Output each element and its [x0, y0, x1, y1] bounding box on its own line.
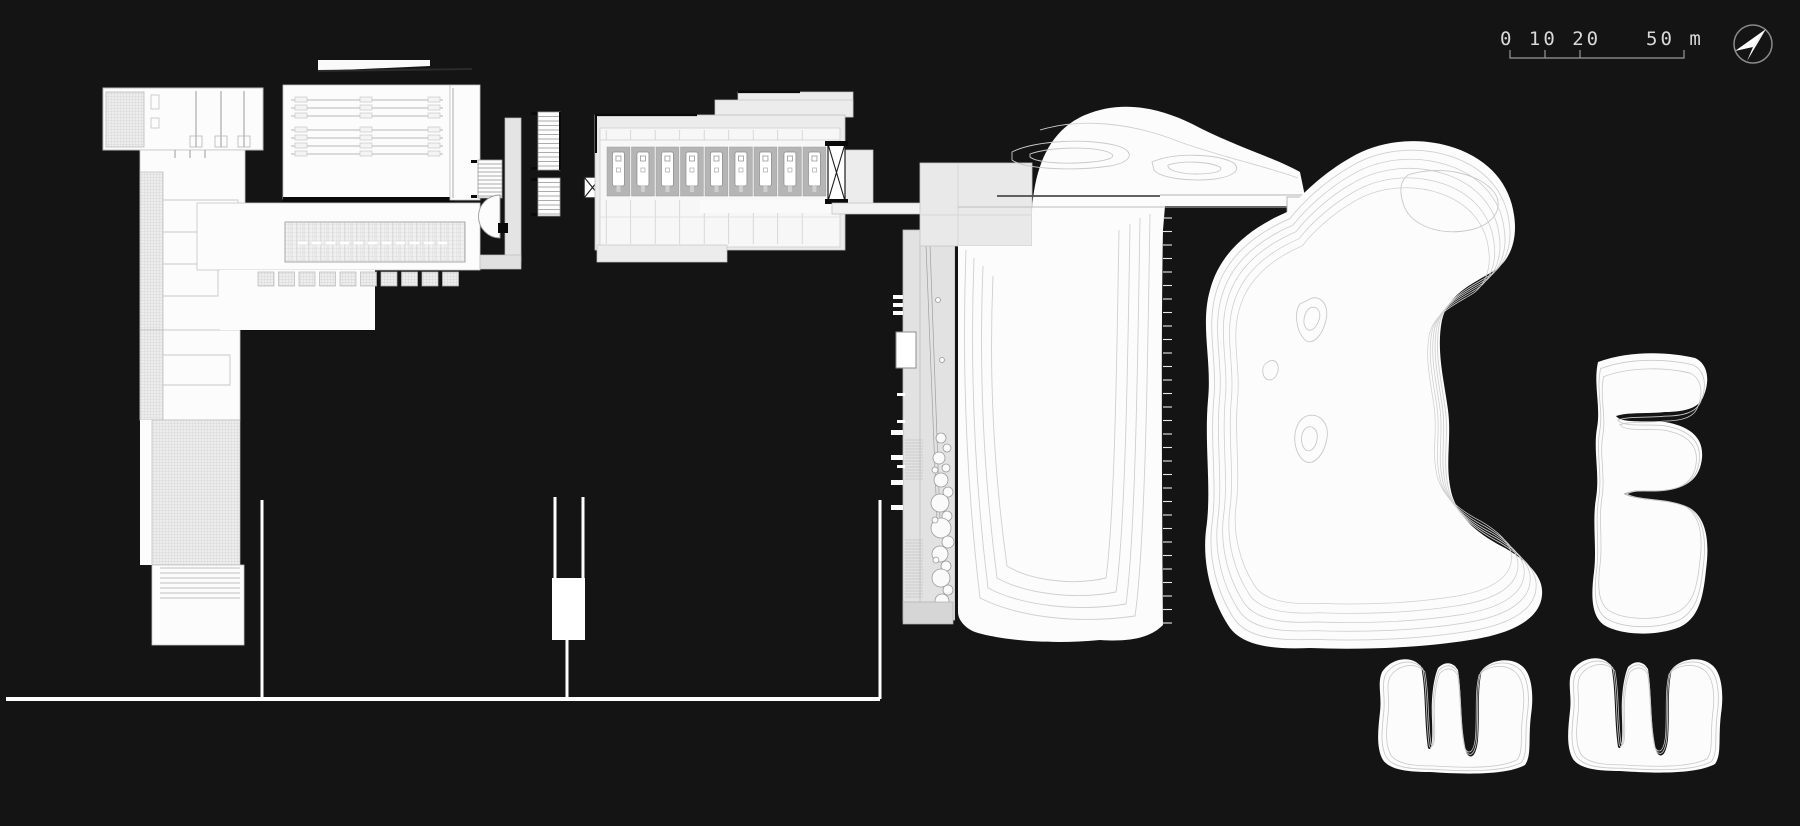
skylight — [258, 272, 274, 286]
bathroom-pod — [686, 152, 698, 186]
row-marker — [360, 113, 372, 118]
east-wing — [450, 85, 480, 200]
entry-hall — [103, 88, 263, 150]
skylight — [320, 272, 336, 286]
pier-tick — [891, 505, 903, 510]
tree-canopy — [933, 452, 945, 464]
skylight — [402, 272, 418, 286]
row-marker — [428, 135, 440, 140]
tree-canopy — [942, 536, 954, 548]
hotel-room-block — [595, 92, 873, 262]
stair-mark — [531, 167, 537, 170]
row-marker — [428, 105, 440, 110]
row-marker — [295, 97, 307, 102]
row-marker — [360, 135, 372, 140]
tree-canopy — [934, 473, 948, 487]
skylight — [422, 272, 438, 286]
walkway-base — [903, 602, 953, 624]
tree-canopy — [933, 557, 939, 563]
row-marker — [295, 151, 307, 156]
row-marker — [295, 135, 307, 140]
stair-mark — [531, 213, 537, 216]
tree-canopy — [936, 433, 946, 443]
core-pier — [498, 223, 508, 233]
bathroom-pod — [612, 152, 624, 186]
scale-label-left: 0 10 20 — [1500, 28, 1601, 50]
north-wing — [715, 100, 853, 117]
ramp-hatch-mid — [140, 330, 163, 420]
pod-stem — [812, 186, 816, 192]
south-wall — [283, 197, 455, 202]
row-marker — [295, 105, 307, 110]
south-gallery — [700, 200, 832, 213]
tree-canopy — [936, 298, 941, 303]
row-marker — [295, 113, 307, 118]
row-marker — [295, 143, 307, 148]
hatched-room — [106, 92, 144, 147]
pier-tick — [893, 311, 903, 315]
pod-stem — [641, 186, 645, 192]
entry-plaza — [920, 163, 1032, 246]
pier-tick — [891, 430, 903, 435]
row-marker — [428, 97, 440, 102]
tree-canopy — [943, 585, 953, 595]
row-marker — [428, 113, 440, 118]
site-plan-canvas: 0 10 20 50 m — [0, 0, 1800, 826]
stair-flight — [538, 178, 560, 216]
ramp-hatch-upper — [140, 172, 163, 330]
ramp-hatch-lower — [152, 420, 240, 565]
tree-canopy — [932, 467, 938, 473]
squiggle-south-east — [1568, 658, 1722, 772]
stair-mark — [531, 112, 537, 115]
pier-tick — [897, 465, 905, 468]
row-marker — [295, 127, 307, 132]
tree-canopy — [940, 358, 945, 363]
pier-tick — [891, 480, 903, 485]
kiosk — [896, 332, 916, 368]
bathroom-pod — [637, 152, 649, 186]
tree-canopy — [932, 517, 938, 523]
tree-canopy — [932, 569, 950, 587]
pod-stem — [763, 186, 767, 192]
row-marker — [428, 127, 440, 132]
skylight — [361, 272, 377, 286]
skylight — [340, 272, 356, 286]
link-bridge — [832, 203, 924, 214]
room-modules — [607, 147, 826, 196]
skylight — [299, 272, 315, 286]
south-annex — [597, 245, 727, 262]
pod-stem — [739, 186, 743, 192]
skylight — [279, 272, 295, 286]
pier-tick — [897, 393, 905, 396]
bathroom-pod — [759, 152, 771, 186]
stair-mark — [471, 195, 477, 198]
skylight — [443, 272, 459, 286]
stair-mark — [471, 160, 477, 163]
skylight — [381, 272, 397, 286]
pod-stem — [665, 186, 669, 192]
tree-canopy — [942, 464, 950, 472]
pier-tick — [891, 455, 903, 460]
bathroom-pod — [735, 152, 747, 186]
site-plan-drawing: 0 10 20 50 m — [0, 0, 1800, 826]
row-marker — [428, 151, 440, 156]
tree-canopy — [943, 444, 951, 452]
pod-stem — [714, 186, 718, 192]
row-marker — [360, 143, 372, 148]
tree-canopy — [931, 494, 949, 512]
auditorium-hall — [283, 85, 480, 210]
pod-stem — [690, 186, 694, 192]
walkway-strip — [505, 118, 521, 262]
pod-stem — [616, 186, 620, 192]
pod-stem — [788, 186, 792, 192]
row-marker — [360, 97, 372, 102]
row-marker — [360, 105, 372, 110]
bathroom-pod — [661, 152, 673, 186]
stair-mark — [531, 178, 537, 181]
row-marker — [360, 127, 372, 132]
scale-label-right: 50 m — [1646, 28, 1704, 50]
bathroom-pod — [784, 152, 796, 186]
row-marker — [360, 151, 372, 156]
bathroom-pod — [710, 152, 722, 186]
row-marker — [428, 143, 440, 148]
squiggle-south-west — [1378, 659, 1532, 773]
pier-tick — [893, 303, 903, 307]
pier-tick — [893, 295, 903, 299]
gate-block — [552, 578, 585, 640]
bathroom-pod — [808, 152, 820, 186]
pier-tick — [897, 420, 905, 423]
